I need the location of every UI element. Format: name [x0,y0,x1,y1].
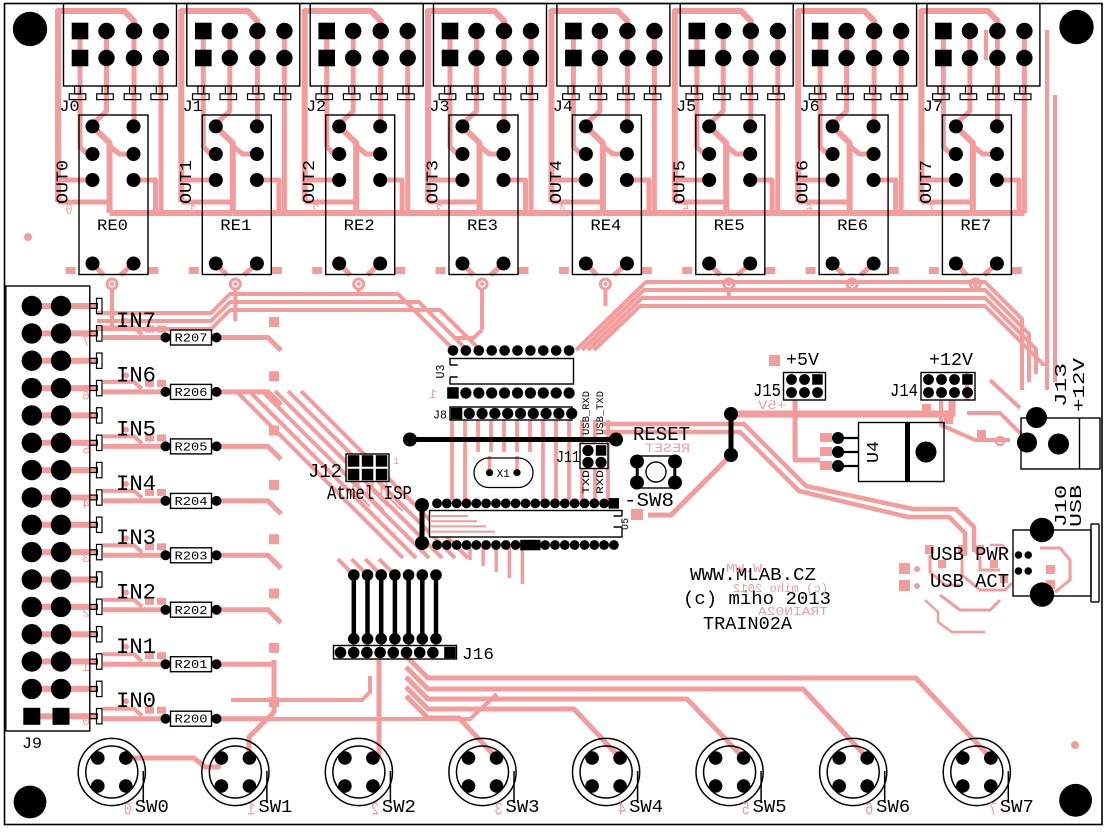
svg-text:U5: U5 [621,518,632,530]
svg-text:0: 0 [124,801,132,821]
svg-text:J0: J0 [60,98,80,116]
svg-text:SW7: SW7 [1000,798,1034,818]
svg-text:TXD: TXD [582,470,593,494]
svg-text:1: 1 [393,457,399,468]
svg-text:RE7: RE7 [960,217,991,235]
svg-text:SW6: SW6 [876,798,910,818]
svg-text:W.WM: W.WM [726,562,762,576]
svg-text:J4: J4 [553,98,573,116]
svg-text:USB_RXD: USB_RXD [582,391,593,435]
svg-text:RXD: RXD [596,470,607,494]
svg-text:RE1: RE1 [220,217,251,235]
svg-text:OUT2: OUT2 [301,160,320,204]
svg-text:R204: R204 [175,496,208,509]
svg-text:OUT5: OUT5 [671,160,690,204]
svg-text:Atmel ISP: Atmel ISP [327,483,412,505]
svg-text:+12V: +12V [1071,357,1090,412]
svg-text:+5V: +5V [758,398,786,413]
svg-text:RE5: RE5 [714,217,745,235]
svg-text:1: 1 [429,387,437,402]
svg-text:2: 2 [312,202,319,219]
svg-text:J12: J12 [308,461,342,483]
svg-text:J9: J9 [22,735,42,753]
svg-text:5: 5 [682,202,689,219]
svg-text:RE3: RE3 [467,217,498,235]
svg-text:4: 4 [618,801,626,821]
svg-text:J6: J6 [800,98,820,116]
svg-text:USB_TXD: USB_TXD [596,391,607,435]
svg-text:RE0: RE0 [97,217,128,235]
svg-text:R206: R206 [175,387,208,400]
svg-text:OUT3: OUT3 [425,160,444,204]
svg-text:J3: J3 [430,98,450,116]
svg-text:J2: J2 [306,98,326,116]
svg-text:R203: R203 [175,550,208,563]
svg-text:U3: U3 [434,365,448,379]
svg-text:IN6: IN6 [116,363,156,388]
svg-text:OUT1: OUT1 [178,160,197,204]
svg-text:3: 3 [436,202,443,219]
svg-text:R200: R200 [175,714,208,727]
svg-text:R201: R201 [175,659,208,672]
svg-text:RE4: RE4 [590,217,621,235]
svg-text:SW1: SW1 [258,798,292,818]
svg-text:J7: J7 [923,98,943,116]
svg-text:J14: J14 [890,382,918,402]
svg-text:(c) miho 2012: (c) miho 2012 [733,582,828,596]
svg-text:IN0: IN0 [116,689,156,714]
svg-text:6: 6 [82,388,90,403]
svg-text:OUT4: OUT4 [548,160,567,204]
svg-text:J5: J5 [676,98,696,116]
svg-text:+5V: +5V [786,351,819,371]
svg-text:IN2: IN2 [116,581,156,606]
svg-text:IN4: IN4 [116,472,156,497]
svg-text:J11: J11 [556,449,580,468]
svg-text:5: 5 [742,801,750,821]
svg-text:3: 3 [495,801,503,821]
svg-text:0: 0 [66,202,73,219]
svg-text:OUT7: OUT7 [918,160,937,204]
svg-text:SW0: SW0 [135,798,169,818]
svg-text:J1: J1 [183,98,203,116]
svg-text:USB: USB [1068,485,1087,527]
svg-text:SW2: SW2 [382,798,416,818]
svg-text:6: 6 [806,202,813,219]
svg-text:U4: U4 [865,441,884,463]
svg-text:-SW8: -SW8 [624,490,674,512]
svg-text:SW3: SW3 [506,798,540,818]
svg-text:1: 1 [189,202,196,219]
svg-text:5: 5 [82,443,90,458]
svg-text:IN5: IN5 [116,418,156,443]
svg-text:0: 0 [82,714,90,729]
svg-text:IN1: IN1 [116,635,156,660]
svg-text:IN7: IN7 [116,309,156,334]
svg-text:J16: J16 [462,646,494,665]
svg-text:1: 1 [247,801,255,821]
svg-text:6: 6 [865,801,873,821]
svg-text:3: 3 [82,551,90,566]
svg-text:4: 4 [559,202,566,219]
svg-text:X1: X1 [497,469,510,481]
svg-text:2: 2 [371,801,379,821]
svg-text:2: 2 [82,606,90,621]
svg-text:R205: R205 [175,441,208,454]
svg-text:OUT6: OUT6 [795,160,814,204]
svg-text:7: 7 [82,334,90,349]
svg-text:J8: J8 [433,409,447,423]
svg-text:USB ACT: USB ACT [930,571,1009,593]
svg-text:1: 1 [82,660,90,675]
svg-text:SW4: SW4 [629,798,663,818]
svg-text:J13: J13 [1053,363,1072,407]
svg-text:R207: R207 [175,333,208,346]
svg-text:+12V: +12V [929,351,973,371]
svg-text:RE6: RE6 [837,217,868,235]
svg-text:7: 7 [989,801,997,821]
svg-text:4: 4 [82,497,90,512]
svg-text:7: 7 [929,202,936,219]
svg-text:OUT0: OUT0 [55,160,74,204]
svg-text:R202: R202 [175,605,208,618]
svg-text:TRAIN02A: TRAIN02A [757,605,828,619]
svg-text:SW5: SW5 [753,798,787,818]
svg-text:USB PWR: USB PWR [930,544,1009,566]
svg-text:RESET: RESET [645,441,690,456]
svg-text:RE2: RE2 [344,217,375,235]
svg-text:IN3: IN3 [116,526,156,551]
